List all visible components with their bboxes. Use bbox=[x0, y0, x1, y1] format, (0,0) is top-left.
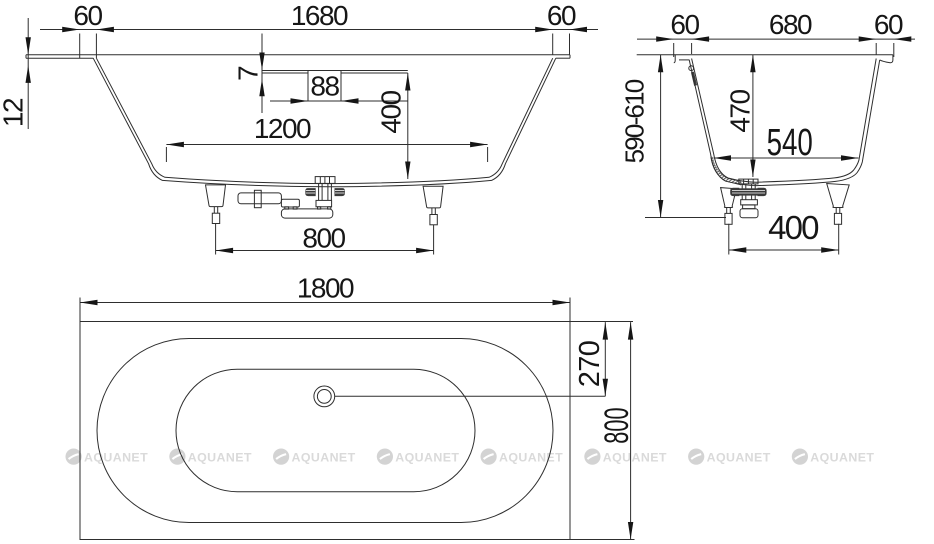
svg-text:470: 470 bbox=[725, 89, 756, 132]
svg-text:800: 800 bbox=[302, 223, 345, 254]
svg-text:60: 60 bbox=[73, 0, 102, 31]
svg-text:88: 88 bbox=[310, 71, 339, 102]
svg-text:60: 60 bbox=[670, 9, 699, 40]
svg-text:AQUANET: AQUANET bbox=[707, 451, 771, 465]
svg-text:12: 12 bbox=[0, 98, 29, 127]
svg-text:7: 7 bbox=[233, 66, 264, 81]
svg-text:400: 400 bbox=[376, 90, 407, 133]
svg-text:1800: 1800 bbox=[297, 273, 354, 304]
svg-text:540: 540 bbox=[767, 122, 813, 164]
svg-text:590-610: 590-610 bbox=[620, 79, 650, 163]
svg-text:AQUANET: AQUANET bbox=[292, 451, 356, 465]
svg-text:AQUANET: AQUANET bbox=[810, 451, 874, 465]
svg-text:60: 60 bbox=[547, 0, 576, 31]
svg-text:400: 400 bbox=[768, 209, 819, 246]
svg-text:800: 800 bbox=[598, 407, 636, 443]
svg-text:270: 270 bbox=[574, 341, 606, 388]
svg-text:AQUANET: AQUANET bbox=[84, 451, 148, 465]
svg-text:680: 680 bbox=[769, 9, 812, 40]
svg-text:AQUANET: AQUANET bbox=[603, 451, 667, 465]
svg-text:60: 60 bbox=[874, 9, 903, 40]
svg-text:1680: 1680 bbox=[291, 0, 348, 31]
svg-text:1200: 1200 bbox=[254, 113, 311, 144]
svg-text:AQUANET: AQUANET bbox=[499, 451, 563, 465]
svg-text:AQUANET: AQUANET bbox=[188, 451, 252, 465]
svg-text:AQUANET: AQUANET bbox=[395, 451, 459, 465]
